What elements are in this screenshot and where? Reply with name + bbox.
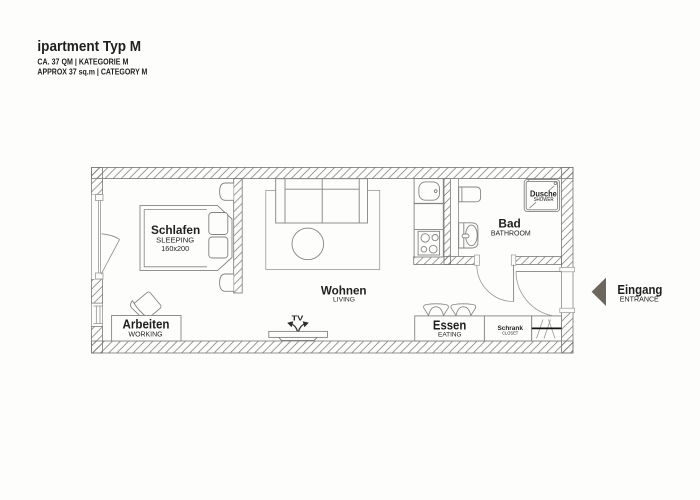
svg-text:CA. 37 QM | KATEGORIE M: CA. 37 QM | KATEGORIE M: [37, 56, 128, 66]
svg-text:Bad: Bad: [498, 217, 520, 231]
svg-text:TV: TV: [292, 313, 304, 322]
svg-text:CLOSET: CLOSET: [502, 330, 518, 335]
svg-text:LIVING: LIVING: [333, 296, 355, 303]
svg-text:160x200: 160x200: [161, 244, 189, 253]
svg-text:APPROX 37 sq.m | CATEGORY M: APPROX 37 sq.m | CATEGORY M: [37, 67, 147, 77]
svg-text:ENTRANCE: ENTRANCE: [620, 294, 659, 303]
svg-text:ipartment Typ M: ipartment Typ M: [37, 38, 141, 55]
svg-text:EATING: EATING: [438, 331, 462, 338]
svg-text:WORKING: WORKING: [129, 329, 163, 338]
svg-text:BATHROOM: BATHROOM: [491, 230, 531, 237]
svg-text:SHOWER: SHOWER: [534, 197, 554, 203]
